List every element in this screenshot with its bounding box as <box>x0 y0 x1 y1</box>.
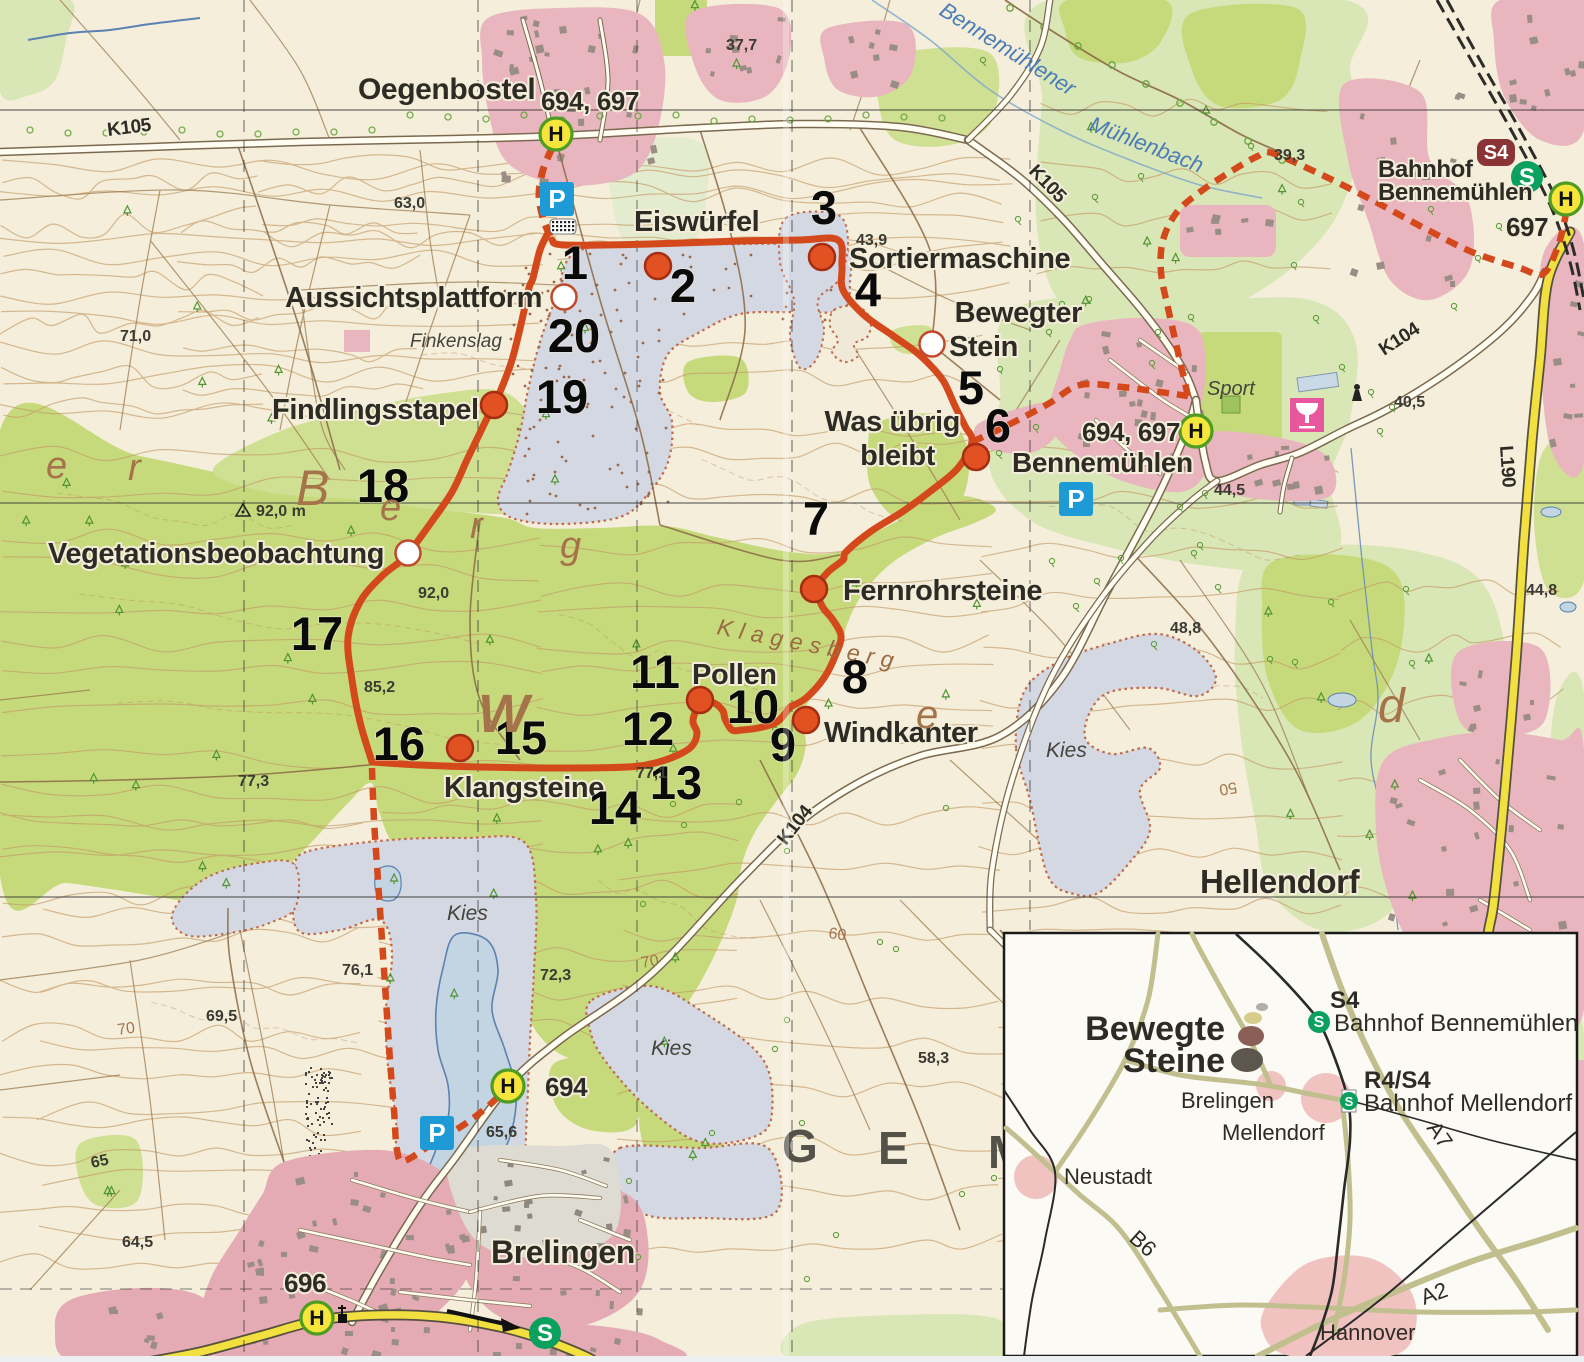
svg-text:P: P <box>428 1118 445 1148</box>
svg-text:12: 12 <box>622 702 674 755</box>
svg-text:Steine: Steine <box>1123 1042 1225 1080</box>
svg-text:92,0 m: 92,0 m <box>256 503 306 520</box>
svg-text:77,1: 77,1 <box>636 765 667 782</box>
svg-text:19: 19 <box>536 370 588 423</box>
svg-text:Brelingen: Brelingen <box>1181 1088 1274 1113</box>
svg-text:H: H <box>309 1307 324 1330</box>
svg-text:40,5: 40,5 <box>1394 394 1425 411</box>
svg-text:S: S <box>1314 1014 1325 1031</box>
svg-text:e: e <box>380 487 401 529</box>
svg-text:H: H <box>500 1075 515 1098</box>
svg-text:694: 694 <box>545 1072 588 1102</box>
svg-text:60: 60 <box>827 925 847 944</box>
svg-text:694, 697: 694, 697 <box>1082 417 1180 447</box>
svg-text:3: 3 <box>811 181 837 234</box>
svg-text:d: d <box>1378 680 1406 733</box>
svg-text:Kies: Kies <box>447 902 488 925</box>
svg-text:Stein: Stein <box>949 331 1018 363</box>
svg-text:2: 2 <box>670 259 696 312</box>
svg-text:Findlingsstapel: Findlingsstapel <box>272 394 479 426</box>
svg-text:S4: S4 <box>1484 142 1509 164</box>
svg-text:Neustadt: Neustadt <box>1064 1164 1152 1189</box>
svg-text:H: H <box>548 123 563 146</box>
svg-text:64,5: 64,5 <box>122 1234 153 1251</box>
svg-text:Brelingen: Brelingen <box>491 1234 635 1270</box>
svg-text:Klangsteine: Klangsteine <box>444 772 604 804</box>
svg-text:72,3: 72,3 <box>540 967 571 984</box>
svg-text:14: 14 <box>589 781 641 834</box>
svg-text:g: g <box>560 525 581 567</box>
svg-text:7: 7 <box>803 492 829 545</box>
svg-text:Bahnhof Mellendorf: Bahnhof Mellendorf <box>1364 1090 1572 1117</box>
svg-text:70: 70 <box>640 952 661 972</box>
svg-text:44,8: 44,8 <box>1526 582 1557 599</box>
svg-text:Aussichtsplattform: Aussichtsplattform <box>285 282 542 314</box>
svg-text:Kies: Kies <box>651 1037 692 1060</box>
svg-text:H: H <box>1558 188 1573 211</box>
svg-text:Bennemühlen: Bennemühlen <box>1012 447 1193 478</box>
svg-text:W: W <box>478 684 533 744</box>
svg-text:39,3: 39,3 <box>1274 147 1305 164</box>
svg-text:P: P <box>548 184 565 214</box>
svg-text:63,0: 63,0 <box>394 195 425 212</box>
svg-text:e: e <box>46 445 67 487</box>
svg-text:50: 50 <box>1218 778 1239 798</box>
svg-text:bleibt: bleibt <box>860 440 936 472</box>
svg-text:48,8: 48,8 <box>1170 620 1201 637</box>
svg-text:694, 697: 694, 697 <box>541 86 639 116</box>
svg-text:6: 6 <box>985 399 1011 452</box>
svg-text:Hellendorf: Hellendorf <box>1200 863 1361 900</box>
svg-text:S: S <box>537 1320 553 1347</box>
svg-text:16: 16 <box>373 717 425 770</box>
svg-text:Bewegter: Bewegter <box>955 297 1082 329</box>
svg-text:85,2: 85,2 <box>364 679 395 696</box>
svg-text:77,3: 77,3 <box>238 773 269 790</box>
svg-text:4: 4 <box>855 263 881 316</box>
svg-text:10: 10 <box>727 680 779 733</box>
svg-text:20: 20 <box>548 309 600 362</box>
svg-text:44,5: 44,5 <box>1214 482 1245 499</box>
svg-text:Was übrig: Was übrig <box>825 406 961 438</box>
svg-text:13: 13 <box>650 756 702 809</box>
svg-text:Windkanter: Windkanter <box>824 717 978 749</box>
svg-text:L190: L190 <box>1495 445 1519 488</box>
svg-text:65,6: 65,6 <box>486 1124 517 1141</box>
svg-text:11: 11 <box>630 645 680 698</box>
svg-text:43,9: 43,9 <box>856 232 887 249</box>
svg-text:Bennemühlen: Bennemühlen <box>1378 179 1532 206</box>
svg-text:H: H <box>1188 420 1203 443</box>
svg-text:Kies: Kies <box>1046 739 1087 762</box>
svg-text:Bahnhof Bennemühlen: Bahnhof Bennemühlen <box>1334 1010 1578 1037</box>
svg-text:e: e <box>916 693 938 737</box>
svg-text:Hannover: Hannover <box>1320 1320 1415 1345</box>
svg-text:71,0: 71,0 <box>120 328 151 345</box>
svg-text:Vegetationsbeobachtung: Vegetationsbeobachtung <box>48 538 384 570</box>
svg-text:S: S <box>1345 1094 1354 1109</box>
svg-text:696: 696 <box>284 1268 326 1298</box>
svg-text:Oegenbostel: Oegenbostel <box>358 73 535 106</box>
svg-text:Fernrohrsteine: Fernrohrsteine <box>843 575 1042 607</box>
svg-text:1: 1 <box>562 236 588 289</box>
svg-text:E: E <box>878 1122 909 1174</box>
svg-text:r: r <box>470 505 484 547</box>
svg-text:92,0: 92,0 <box>418 585 449 602</box>
svg-text:17: 17 <box>291 607 343 660</box>
svg-text:37,7: 37,7 <box>726 37 757 54</box>
svg-text:Finkenslag: Finkenslag <box>410 331 502 352</box>
svg-text:58,3: 58,3 <box>918 1050 949 1067</box>
svg-text:Eiswürfel: Eiswürfel <box>634 206 759 238</box>
svg-text:70: 70 <box>116 1020 136 1039</box>
svg-text:76,1: 76,1 <box>342 962 373 979</box>
svg-text:65: 65 <box>89 1152 110 1172</box>
svg-text:697: 697 <box>1506 212 1548 242</box>
svg-text:69,5: 69,5 <box>206 1008 237 1025</box>
svg-text:Sport: Sport <box>1207 378 1256 400</box>
svg-text:Mellendorf: Mellendorf <box>1222 1120 1326 1145</box>
svg-text:P: P <box>1067 484 1084 514</box>
svg-text:5: 5 <box>958 361 984 414</box>
svg-text:r: r <box>128 447 142 489</box>
